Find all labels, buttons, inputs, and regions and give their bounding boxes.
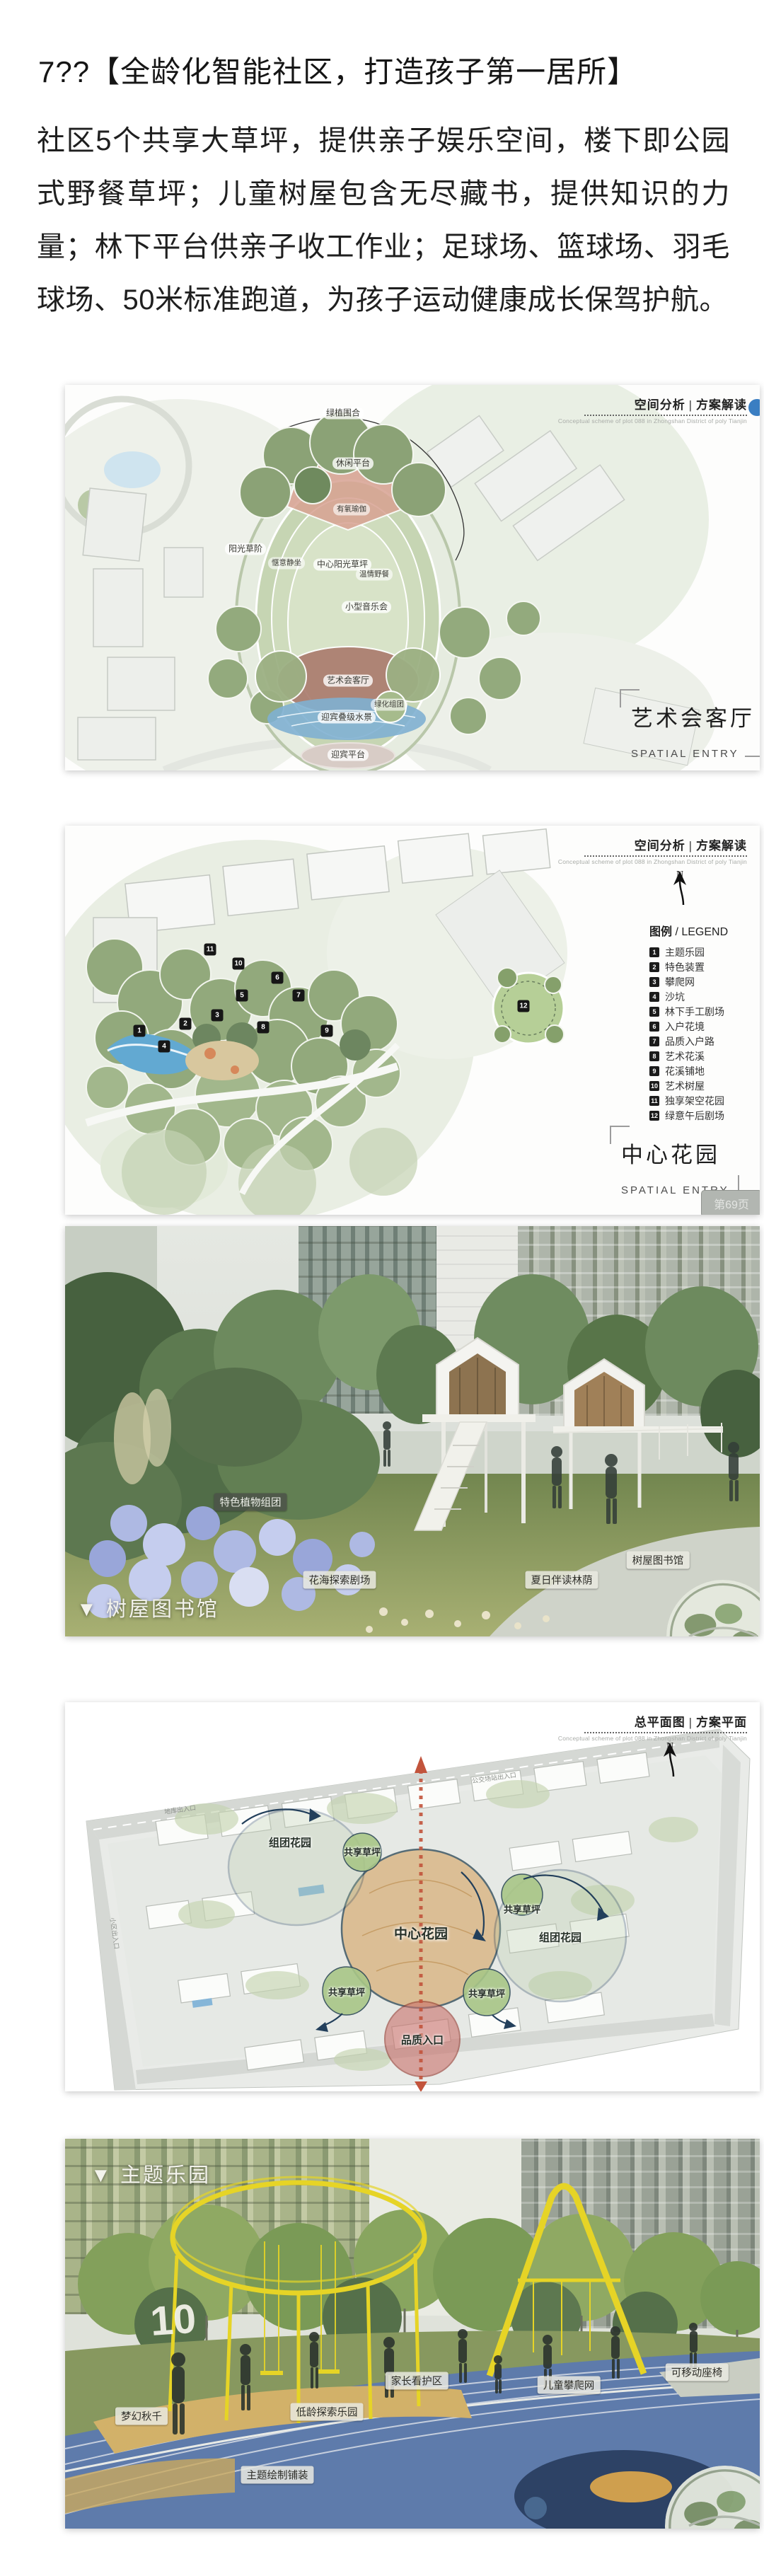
section-title-block: 中心花园 SPATIAL ENTRY: [621, 1137, 729, 1196]
plan-marker: 12: [518, 1000, 530, 1012]
slide-header-title: 空间分析 | 方案解读: [558, 836, 747, 853]
page-title: 7??【全龄化智能社区，打造孩子第一居所】: [38, 48, 731, 91]
plan-label-leisure: 休闲平台: [332, 458, 374, 470]
plan-label-cluster-garden: 组团花园: [539, 1930, 581, 1945]
plan-label-concert: 小型音乐会: [342, 601, 391, 613]
photo-tag-toddler: 低龄探索乐园: [291, 2403, 364, 2421]
legend-item: 5林下手工剧场: [649, 1004, 728, 1019]
legend-item: 1主题乐园: [649, 945, 728, 959]
plan-label-yoga: 有氧瑜伽: [333, 504, 370, 516]
plan-marker: 3: [212, 1010, 224, 1022]
figure-central-garden-plan[interactable]: 1 2 3 4 5 6 7 8 9 10 11 12 空间分析 | 方案解读 C…: [65, 826, 760, 1215]
legend-item: 9花溪铺地: [649, 1063, 728, 1078]
figure-master-plan[interactable]: 中心花园 组团花园 组团花园 共享草坪 共享草坪 共享草坪 共享草坪 品质入口 …: [65, 1702, 760, 2091]
legend-title: 图例 / LEGEND: [649, 922, 728, 939]
photo-tag-plants: 特色植物组团: [214, 1494, 287, 1511]
photo-tag-climb: 儿童攀爬网: [538, 2376, 601, 2394]
plan-label-water: 迎宾叠级水景: [318, 712, 376, 724]
plan-label-center-garden: 中心花园: [394, 1924, 448, 1943]
plan-label-shared-lawn: 共享草坪: [328, 1985, 365, 1999]
playground-graphic: 10: [65, 2139, 760, 2529]
slide-header-subtitle: Conceptual scheme of plot 088 in Zhongsh…: [558, 1735, 747, 1742]
plan-marker: 4: [158, 1041, 170, 1053]
bracket-icon: [745, 739, 760, 757]
body-paragraph: 社区5个共享大草坪，提供亲子娱乐空间，楼下即公园式野餐草坪；儿童树屋包含无尽藏书…: [37, 115, 730, 327]
slide-header-title: 空间分析 | 方案解读: [558, 395, 747, 412]
figure-treehouse-library-photo[interactable]: 特色植物组团 花海探索剧场 夏日伴读林荫 树屋图书馆 ▼ 树屋图书馆: [65, 1226, 760, 1636]
article-page: { "page": { "title": "7??【全龄化智能社区，打造孩子第一…: [0, 0, 764, 2576]
plan-marker: 2: [180, 1018, 192, 1030]
svg-text:10: 10: [149, 2296, 197, 2345]
photo-tag-swing: 梦幻秋千: [115, 2408, 168, 2425]
legend-item: 6入户花境: [649, 1019, 728, 1034]
plan-label-cluster-garden: 组团花园: [269, 1835, 311, 1850]
page-number-badge: 第69页: [701, 1190, 760, 1215]
figure-art-hall-plan[interactable]: 绿植围合 休闲平台 有氧瑜伽 阳光草阶 惬意静坐 中心阳光草坪 温情野餐 小型音…: [65, 385, 760, 770]
bracket-icon: [610, 1126, 630, 1144]
figure-theme-park-photo[interactable]: 10 ▼ 主题乐园 梦幻秋千 低龄探索乐园 家长看护区 儿童攀爬网 可移动座椅 …: [65, 2139, 760, 2529]
photo-caption: ▼ 树屋图书馆: [76, 1593, 219, 1622]
plan-marker: 11: [204, 944, 216, 956]
plan-marker: 8: [257, 1022, 270, 1034]
photo-tag-seat: 可移动座椅: [666, 2364, 729, 2381]
legend-item: 3攀爬网: [649, 974, 728, 989]
slide-header-title: 总平面图 | 方案平面: [558, 1712, 747, 1730]
plan-label-shared-lawn: 共享草坪: [468, 1987, 505, 2000]
legend-item: 11独享架空花园: [649, 1093, 728, 1108]
section-subtitle: SPATIAL ENTRY: [631, 748, 755, 760]
photo-caption: ▼ 主题乐园: [91, 2159, 211, 2188]
plan-marker: 9: [321, 1025, 333, 1037]
slide-header-subtitle: Conceptual scheme of plot 088 in Zhongsh…: [558, 858, 747, 865]
legend-item: 10艺术树屋: [649, 1078, 728, 1093]
slide-header-subtitle: Conceptual scheme of plot 088 in Zhongsh…: [558, 417, 747, 424]
plan-marker: 7: [293, 990, 305, 1002]
legend-item: 12绿意午后剧场: [649, 1108, 728, 1123]
dotted-rule: [584, 855, 747, 857]
section-title-block: 艺术会客厅 SPATIAL ENTRY: [631, 700, 755, 760]
plan-marker: 6: [272, 972, 284, 984]
plan-marker: 5: [236, 990, 248, 1002]
plan-label-platform: 迎宾平台: [328, 749, 369, 761]
slide-header: 空间分析 | 方案解读 Conceptual scheme of plot 08…: [558, 836, 747, 865]
site-plan-watermark: [666, 1580, 760, 1636]
section-title: 中心花园: [621, 1137, 729, 1169]
north-arrow-icon: N: [658, 1741, 682, 1752]
plan-label-shared-lawn: 共享草坪: [504, 1902, 540, 1916]
site-plan-watermark: [665, 2466, 760, 2529]
plan-label-green-cluster: 绿化组团: [371, 699, 407, 711]
landscape-graphic: [65, 1226, 760, 1636]
photo-tag-reading: 夏日伴读林荫: [526, 1571, 598, 1589]
section-title: 艺术会客厅: [631, 700, 755, 732]
north-arrow-icon: N: [668, 870, 692, 881]
slide-header: 总平面图 | 方案平面 Conceptual scheme of plot 08…: [558, 1712, 747, 1742]
plan-label-quality-entry: 品质入口: [401, 2033, 444, 2047]
plan-label-enclosure: 绿植围合: [323, 408, 364, 420]
dotted-rule: [584, 415, 747, 416]
plan-label-art-hall: 艺术会客厅: [323, 675, 373, 687]
photo-tag-paving: 主题绘制铺装: [241, 2466, 314, 2484]
plan-label-sitting: 惬意静坐: [268, 558, 305, 570]
photo-tag-treehouse: 树屋图书馆: [627, 1552, 690, 1569]
plan-marker: 10: [233, 958, 245, 970]
dotted-rule: [584, 1732, 747, 1733]
legend-item: 8艺术花溪: [649, 1049, 728, 1063]
legend: 图例 / LEGEND 1主题乐园 2特色装置 3攀爬网 4沙坑 5林下手工剧场…: [649, 922, 728, 1123]
slide-header: 空间分析 | 方案解读 Conceptual scheme of plot 08…: [558, 395, 747, 424]
plan-marker: 1: [134, 1025, 146, 1037]
legend-item: 2特色装置: [649, 959, 728, 974]
legend-item: 4沙坑: [649, 989, 728, 1004]
plan-label-shared-lawn: 共享草坪: [344, 1845, 381, 1859]
legend-item: 7品质入户路: [649, 1034, 728, 1049]
photo-tag-guardian: 家长看护区: [386, 2372, 448, 2390]
bracket-icon: [620, 689, 639, 707]
plan-label-picnic: 温情野餐: [356, 569, 393, 581]
plan-label-lawn-steps: 阳光草阶: [225, 543, 266, 555]
photo-tag-flower: 花海探索剧场: [303, 1571, 376, 1589]
